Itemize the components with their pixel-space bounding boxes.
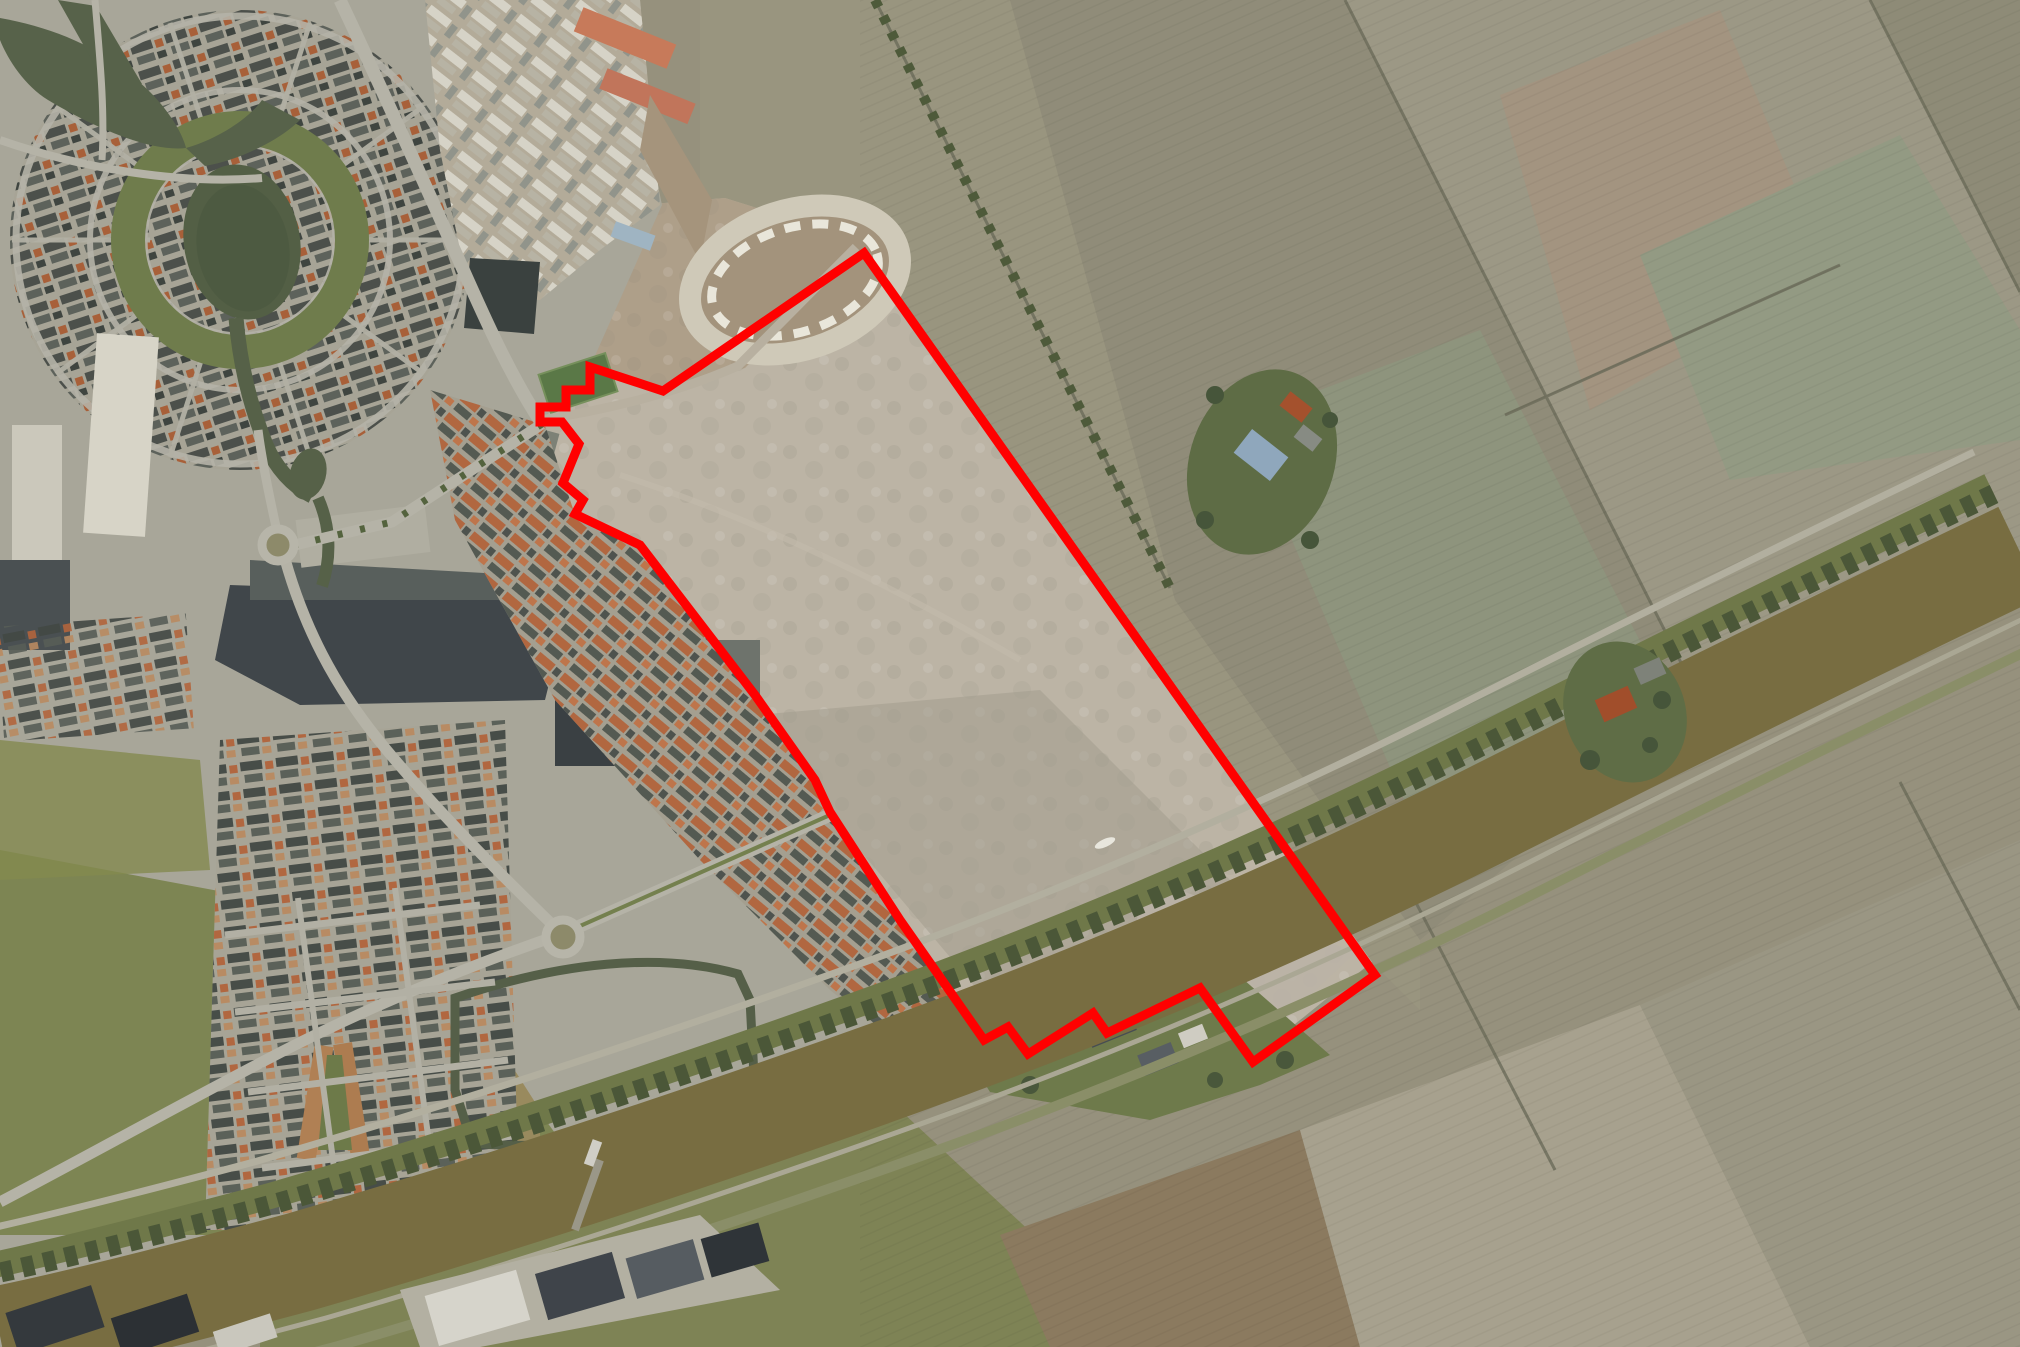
aerial-photo-map: Aerial photograph of a Dutch town edge w…	[0, 0, 2020, 1347]
aerial-photo-page: Aerial photograph of a Dutch town edge w…	[0, 0, 2020, 1347]
